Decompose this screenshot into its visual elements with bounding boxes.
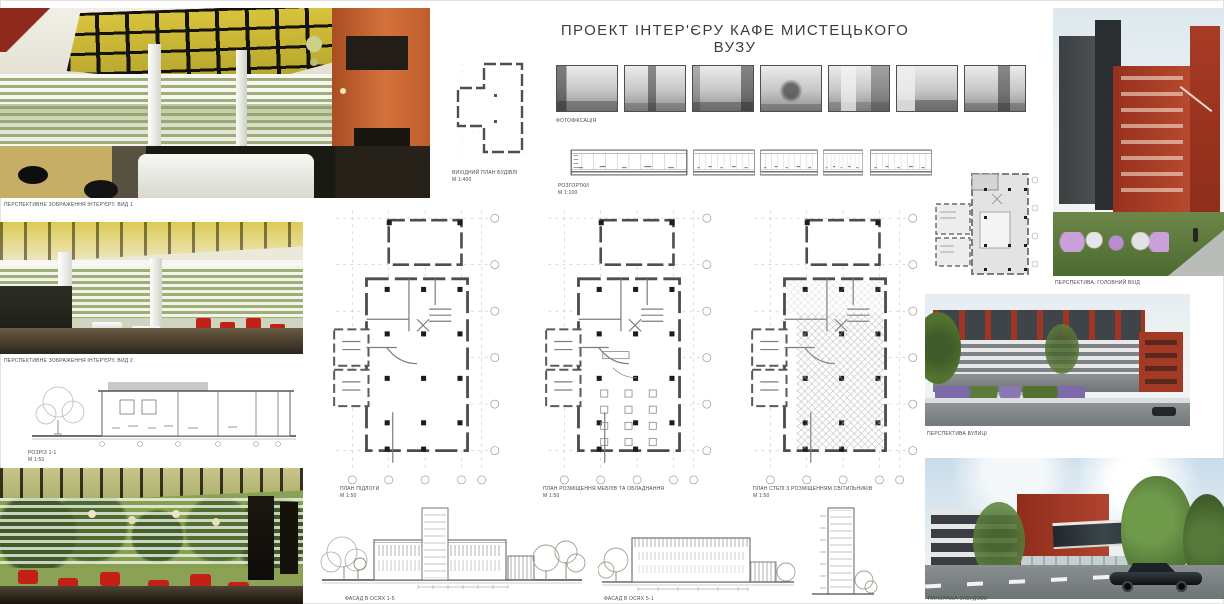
unwrap-segment: [760, 147, 818, 178]
pendant-lamp: [306, 36, 322, 52]
outside-greenery: [0, 104, 335, 146]
caption-section: РОЗРІЗ 1-1 М 1:50: [28, 450, 57, 463]
caption-unwraps: РОЗГОРТКИ М 1:100: [558, 183, 589, 196]
caption-plan-2: ПЛАН РОЗМІЩЕННЯ МЕБЛІВ ТА ОБЛАДНАННЯ М 1…: [543, 486, 664, 499]
black-stool: [84, 180, 118, 198]
shrub-row: [935, 386, 1085, 398]
site-photo: [828, 65, 890, 112]
floor-plan-1-drawing: [330, 200, 502, 488]
section-drawing: [28, 376, 300, 448]
caption-site-plan: ВИХІДНИЙ ПЛАН БУДІВЛІ М 1:400: [452, 170, 517, 183]
interior-render-1: [0, 8, 430, 198]
facade-1-drawing: [318, 500, 586, 594]
board-title: ПРОЕКТ ІНТЕР'ЄРУ КАФЕ МИСТЕЦЬКОГО ВУЗУ: [545, 22, 925, 56]
caption-line: ФОТОФІКСАЦІЯ: [556, 118, 596, 125]
red-chair: [18, 570, 38, 584]
caption-scale: М 1:50: [543, 493, 664, 500]
caption-facade-2: ФАСАД В ОСЯХ 5-1: [604, 596, 654, 603]
caption-plan-3: ПЛАН СТЕЛІ З РОЗМІЩЕННЯМ СВІТИЛЬНИКІВ М …: [753, 486, 872, 499]
floor-plan-2-drawing: [542, 200, 714, 488]
caption-exterior-3: ПАНОРАМА ЗАБУДОВИ: [928, 596, 988, 603]
caption-scale: М 1:400: [452, 177, 517, 184]
mirror-panel: [248, 496, 274, 580]
site-photo: [624, 65, 686, 112]
caption-line: ПЕРСПЕКТИВА. ГОЛОВНИЙ ВХІД: [1055, 280, 1140, 287]
car-silhouette: [1152, 407, 1176, 416]
unwrap-segment: [823, 147, 863, 178]
building-window-band: [933, 340, 1145, 374]
site-photo: [964, 65, 1026, 112]
tower-elevation-drawing: [808, 502, 878, 600]
person-figure: [1193, 228, 1198, 242]
window-grid: [1121, 76, 1183, 202]
caption-line: ВИХІДНИЙ ПЛАН БУДІВЛІ: [452, 170, 517, 177]
car-wheel: [1176, 581, 1187, 592]
caption-line: ФАСАД В ОСЯХ 5-1: [604, 596, 654, 603]
site-photo: [760, 65, 822, 112]
caption-line: ПАНОРАМА ЗАБУДОВИ: [928, 596, 988, 603]
facade-2-drawing: [598, 518, 798, 596]
car: [1110, 563, 1202, 591]
keyed-plan-drawing: [932, 168, 1040, 292]
tree: [1045, 324, 1079, 374]
caption-scale: М 1:50: [340, 493, 379, 500]
red-chair: [100, 572, 120, 586]
caption-line: ПЛАН СТЕЛІ З РОЗМІЩЕННЯМ СВІТИЛЬНИКІВ: [753, 486, 872, 493]
caption-line: РОЗГОРТКИ: [558, 183, 589, 190]
caption-exterior-1: ПЕРСПЕКТИВА. ГОЛОВНИЙ ВХІД: [1055, 280, 1140, 287]
building-top-band: [933, 310, 1145, 340]
mirror-panel: [280, 502, 298, 574]
window-grid: [1145, 340, 1177, 384]
column: [150, 258, 162, 336]
unwrap-segment: [570, 147, 688, 178]
interior-render-2: [0, 222, 303, 354]
caption-render-1: ПЕРСПЕКТИВНЕ ЗОБРАЖЕННЯ ІНТЕР'ЄРУ. ВИД 1: [4, 202, 133, 209]
caption-scale: М 1:50: [753, 493, 872, 500]
photo-strip: [556, 65, 1026, 112]
exterior-render-2: [925, 294, 1190, 426]
site-plan-drawing: [450, 58, 536, 166]
pendant-lamp: [88, 510, 96, 518]
floor-plan-3-drawing: [748, 200, 920, 488]
caption-line: ПЕРСПЕКТИВНЕ ЗОБРАЖЕННЯ ІНТЕР'ЄРУ. ВИД 2: [4, 358, 133, 365]
site-photo: [692, 65, 754, 112]
caption-facade-1: ФАСАД В ОСЯХ 1-5: [345, 596, 395, 603]
white-counter-table: [138, 154, 314, 198]
caption-line: ФАСАД В ОСЯХ 1-5: [345, 596, 395, 603]
caption-line: РОЗРІЗ 1-1: [28, 450, 57, 457]
exterior-render-3: [925, 458, 1224, 599]
black-stool: [18, 166, 48, 184]
wall-lamp-dot: [340, 88, 346, 94]
caption-line: ПЛАН РОЗМІЩЕННЯ МЕБЛІВ ТА ОБЛАДНАННЯ: [543, 486, 664, 493]
caption-line: ПЕРСПЕКТИВНЕ ЗОБРАЖЕННЯ ІНТЕР'ЄРУ. ВИД 1: [4, 202, 133, 209]
caption-exterior-2: ПЕРСПЕКТИВА ВУЛИЦІ: [927, 431, 987, 438]
unwrap-segment: [693, 147, 755, 178]
exterior-render-1: [1053, 8, 1224, 276]
interior-render-3: [0, 468, 303, 604]
caption-line: ПЕРСПЕКТИВА ВУЛИЦІ: [927, 431, 987, 438]
red-block: [1139, 332, 1183, 392]
caption-photos: ФОТОФІКСАЦІЯ: [556, 118, 596, 125]
caption-scale: М 1:50: [28, 457, 57, 464]
site-photo: [896, 65, 958, 112]
car-wheel: [1122, 581, 1133, 592]
site-photo: [556, 65, 618, 112]
floor: [0, 328, 303, 354]
floor: [0, 586, 303, 604]
caption-render-2: ПЕРСПЕКТИВНЕ ЗОБРАЖЕННЯ ІНТЕР'ЄРУ. ВИД 2: [4, 358, 133, 365]
corner-red-wedge: [0, 8, 80, 52]
caption-scale: М 1:100: [558, 190, 589, 197]
caption-plan-1: ПЛАН ПІДЛОГИ М 1:50: [340, 486, 379, 499]
flower-bed: [1059, 232, 1169, 252]
road: [925, 403, 1190, 426]
presentation-board: ПЕРСПЕКТИВНЕ ЗОБРАЖЕННЯ ІНТЕР'ЄРУ. ВИД 1…: [0, 0, 1224, 604]
unwrap-segment: [870, 147, 932, 178]
caption-line: ПЛАН ПІДЛОГИ: [340, 486, 379, 493]
wall-art-frame: [346, 36, 408, 70]
